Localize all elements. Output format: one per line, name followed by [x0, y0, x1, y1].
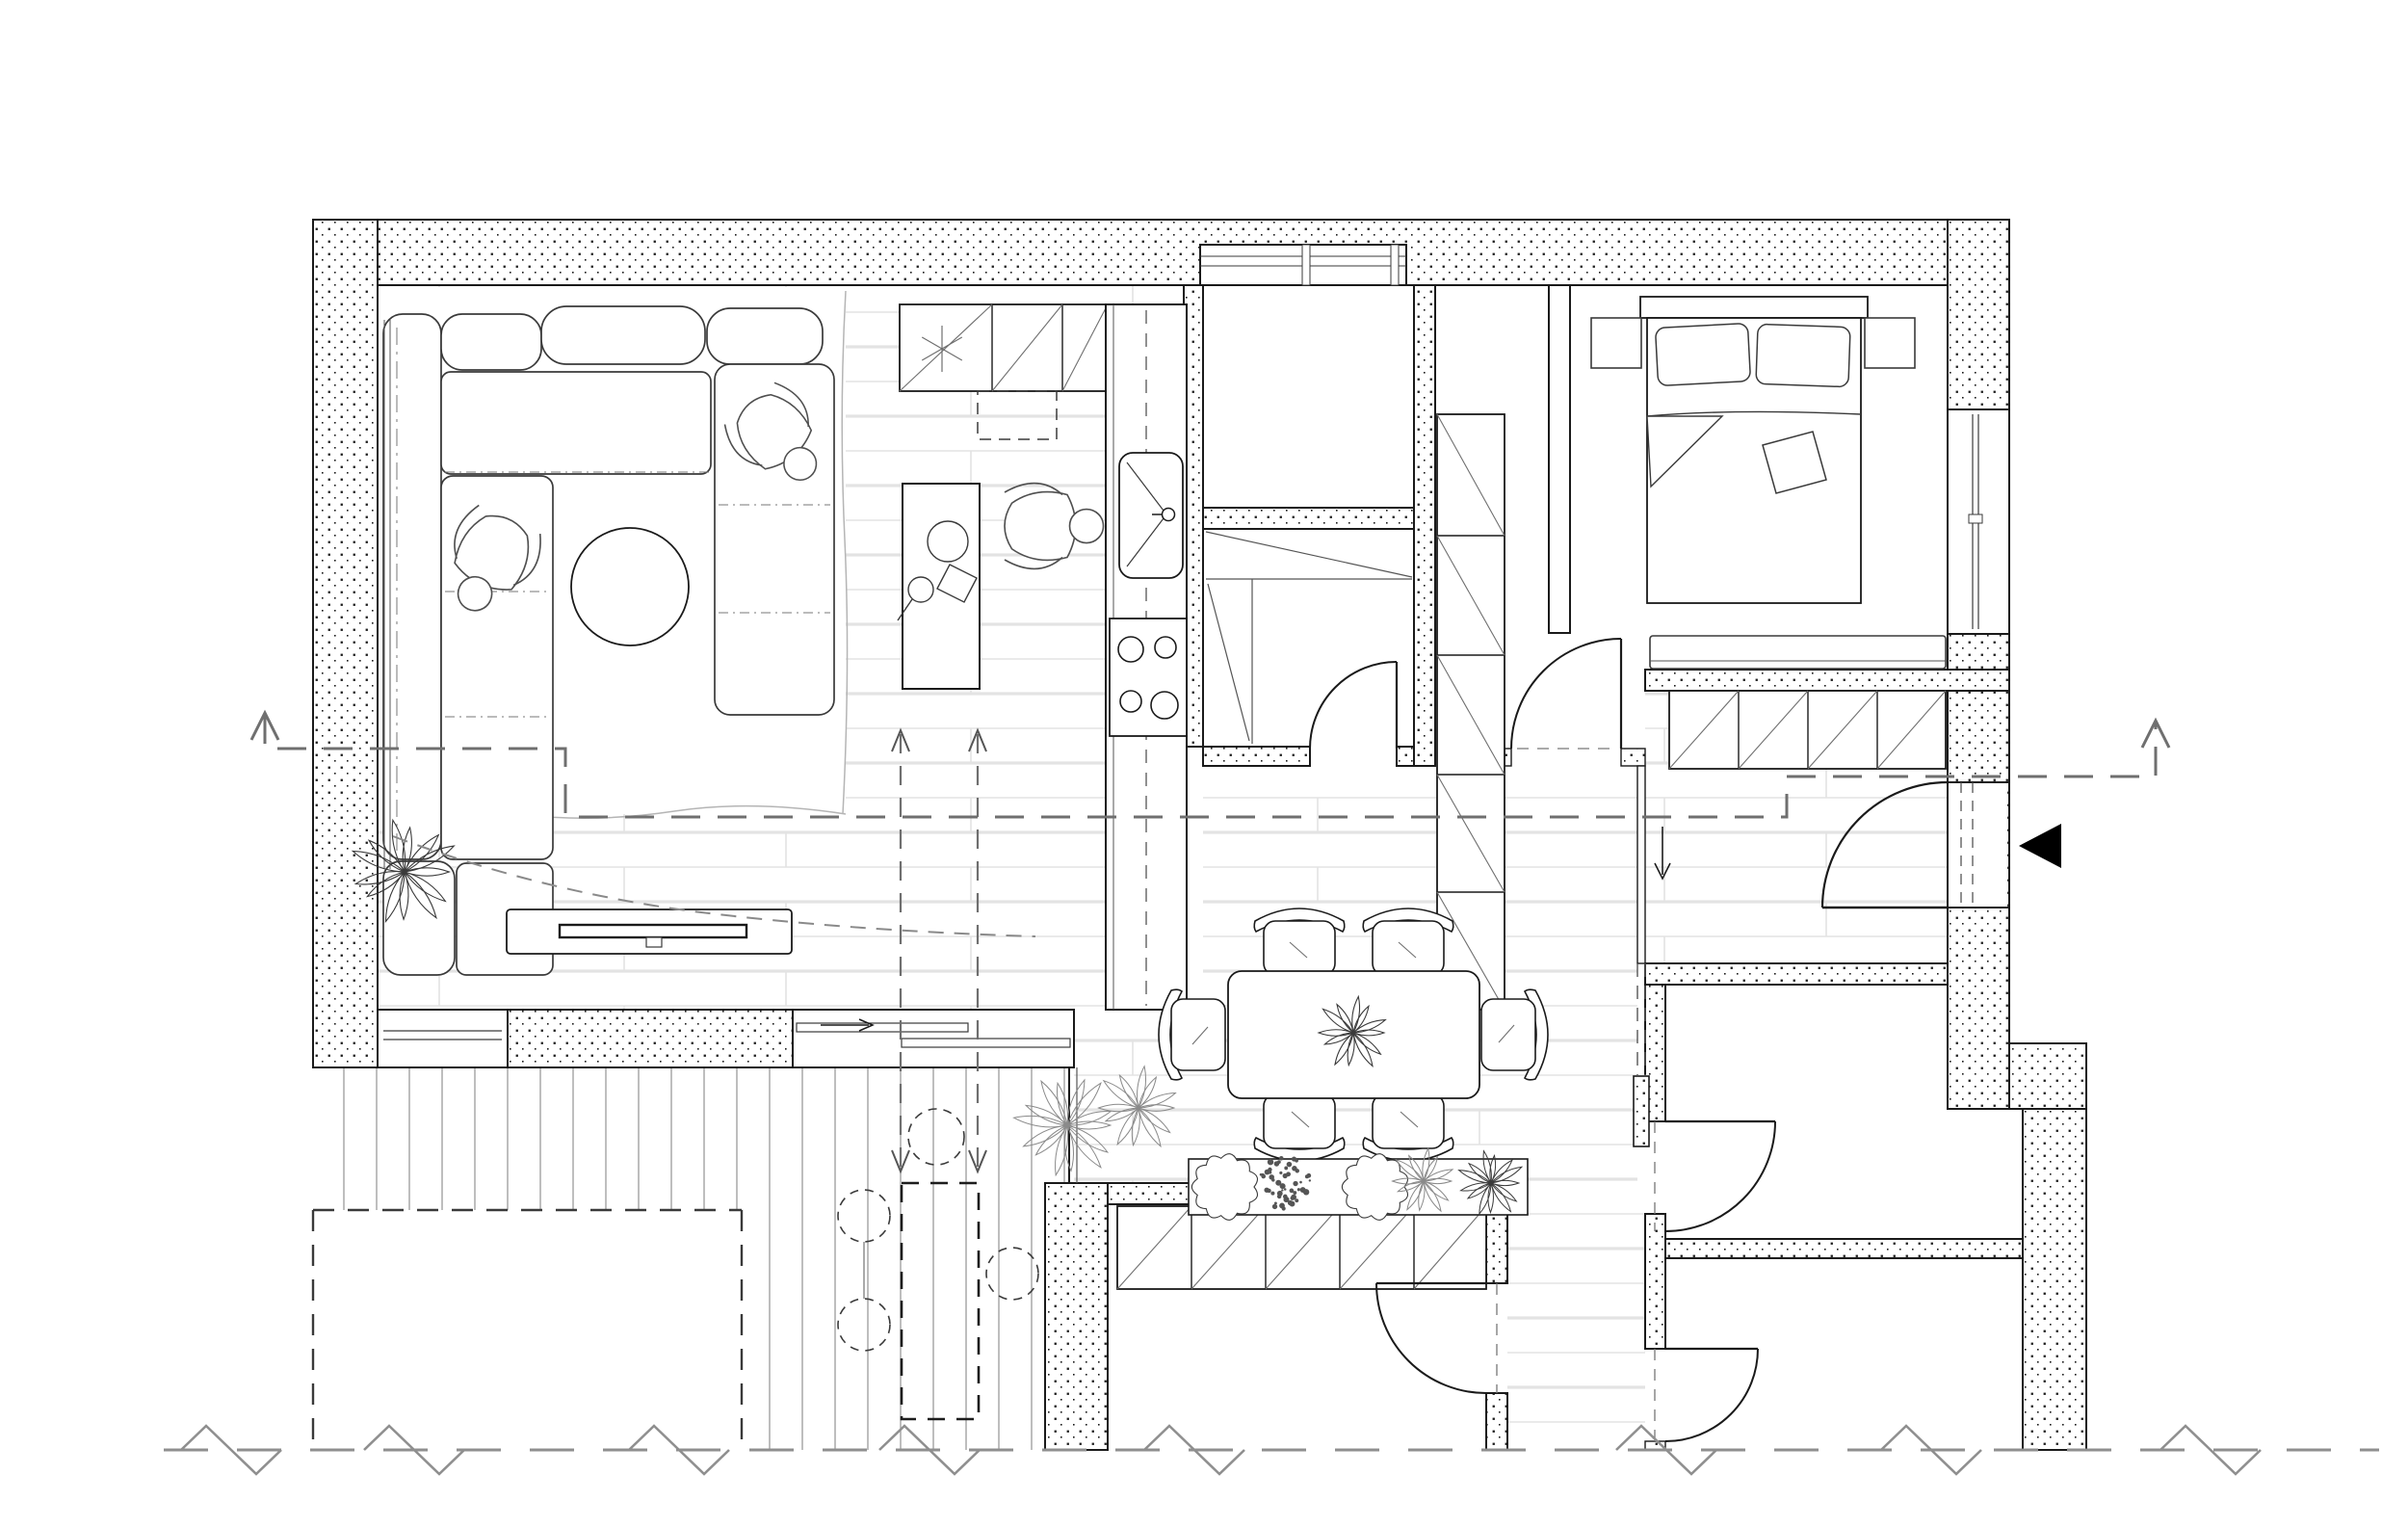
wall-midrooms-divider [1203, 508, 1414, 529]
deck-lower [742, 1210, 1069, 1450]
wall-left [313, 220, 378, 1067]
wall-bedroom-west [1549, 285, 1570, 633]
window-east-sash-tick [1969, 514, 1982, 523]
dining-chair-bottom-1 [1254, 1094, 1345, 1161]
wall-midrooms-east [1414, 285, 1435, 766]
bedroom-console [1650, 636, 1946, 669]
wall-step-v [2023, 1109, 2086, 1450]
wall-partition-stub [1634, 1076, 1649, 1146]
wall-step-h [2009, 1043, 2086, 1109]
island-pan [908, 577, 933, 602]
glass-partition [1637, 766, 1645, 963]
nightstand-left [1591, 318, 1641, 368]
sideboard [1117, 1206, 1486, 1289]
window-top-mullion-b [1391, 245, 1399, 285]
sofa-seat-top [441, 372, 711, 474]
pillow-left [1655, 324, 1750, 386]
dining-chair-bottom-2 [1363, 1094, 1453, 1161]
wall-south-mid [508, 1010, 793, 1067]
sofa-left-arm [383, 314, 441, 859]
island-bowl [928, 521, 968, 562]
coffee-table [571, 528, 689, 645]
sofa-back-corner [441, 314, 541, 370]
wall-botmid-east-a [1486, 1204, 1507, 1283]
nightstand-right [1865, 318, 1915, 368]
wall-hall-stub-b [1621, 749, 1645, 766]
floor-plan-svg [0, 0, 2408, 1527]
wall-east [1948, 220, 2009, 1109]
floor-corridor-south [1507, 1204, 1645, 1450]
deck-upper [318, 1067, 1069, 1210]
slider-panel-b [902, 1039, 1070, 1047]
faucet [1163, 509, 1175, 521]
kitchen-upper-cabinets [900, 304, 1139, 391]
dining-chair-right [1481, 989, 1548, 1080]
wall-rooms-mid [1665, 1239, 2023, 1258]
wall-top [318, 220, 2009, 285]
window-top-mullion-a [1302, 245, 1310, 285]
front-door-gap [1950, 782, 2007, 908]
dining-chair-left [1159, 989, 1225, 1080]
sofa-back-b [707, 308, 823, 364]
wall-rooms-west-b [1645, 1214, 1665, 1349]
sofa-back-a [541, 306, 705, 364]
dining-chair-top-1 [1254, 908, 1345, 975]
wall-storage-south-b [1397, 747, 1414, 766]
tv [560, 925, 746, 937]
wall-bedroom-south [1645, 670, 2009, 691]
cooktop [1110, 619, 1187, 736]
window-south [378, 1010, 508, 1067]
wall-entry-room [1645, 963, 1948, 985]
floor-plan-page [0, 0, 2408, 1527]
entry-wardrobe [1669, 691, 1946, 769]
bed-headboard [1640, 297, 1868, 318]
wall-dining-southwest [1045, 1183, 1108, 1450]
wall-botmid-east-b [1486, 1393, 1507, 1450]
wall-storage-south-a [1203, 747, 1310, 766]
pillow-right [1756, 324, 1850, 386]
dining-chair-top-2 [1363, 908, 1453, 975]
tv-mount [646, 937, 662, 947]
wall-hall-stub-a [1505, 749, 1511, 766]
